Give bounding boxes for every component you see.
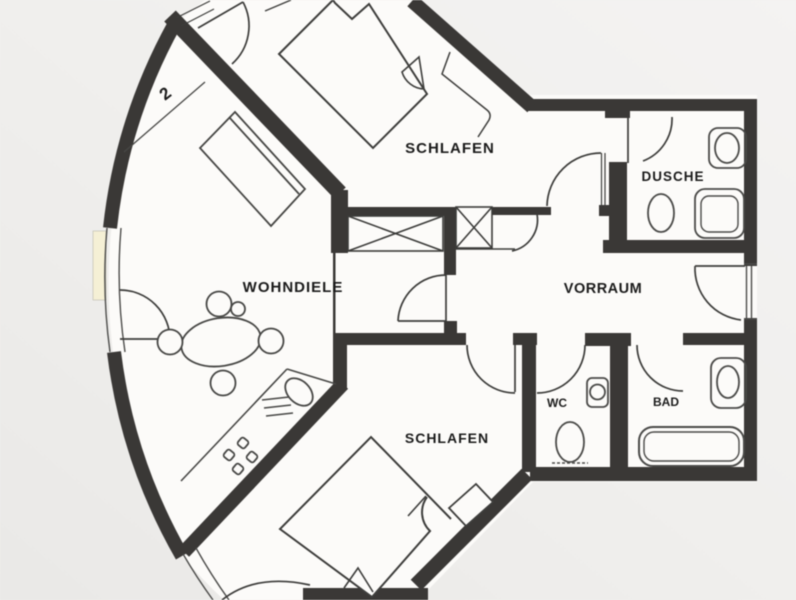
svg-text:DUSCHE: DUSCHE [641, 169, 704, 184]
svg-text:SCHLAFEN: SCHLAFEN [405, 430, 489, 446]
svg-text:BAD: BAD [653, 395, 679, 409]
svg-text:SCHLAFEN: SCHLAFEN [405, 140, 495, 157]
svg-text:WOHNDIELE: WOHNDIELE [243, 279, 344, 296]
svg-text:WC: WC [547, 396, 567, 410]
svg-text:VORRAUM: VORRAUM [564, 281, 642, 297]
